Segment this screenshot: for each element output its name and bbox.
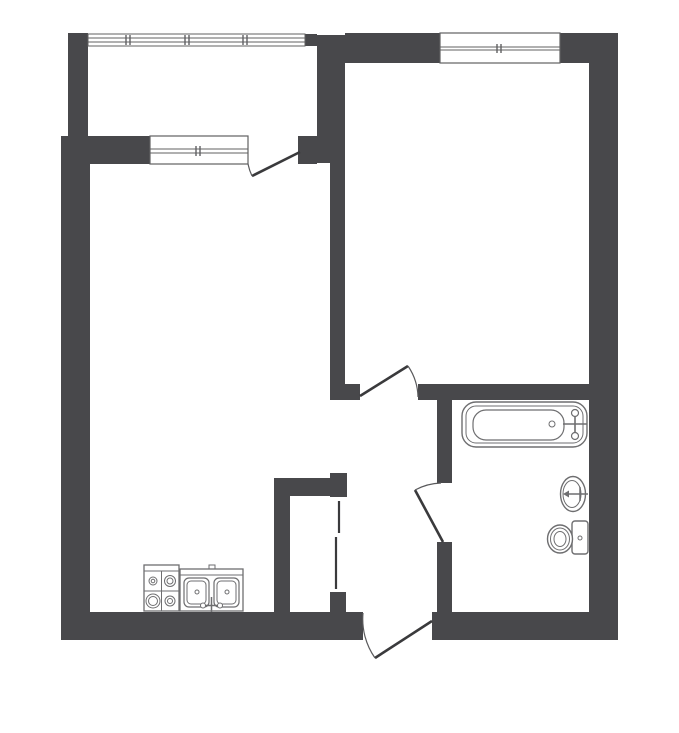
floorplan-svg: [0, 0, 679, 733]
kitchen-sink: [180, 565, 243, 612]
door-balcony: [248, 152, 300, 176]
wall-bath-left-upper: [437, 400, 452, 483]
wall-bedroom-top-left: [345, 33, 440, 63]
wall-bedroom-top-right: [560, 33, 618, 63]
room-balcony: [88, 46, 317, 136]
wall-outer-bottom-left: [61, 612, 363, 640]
room-bedroom: [345, 63, 589, 384]
wall-closet-left: [274, 478, 290, 613]
wall-balcony-left: [68, 33, 88, 136]
wall-closet-block-top: [330, 473, 347, 497]
wall-hall-top: [418, 384, 618, 400]
wall-outer-right: [589, 33, 618, 640]
wall-closet-block-bottom: [330, 592, 346, 613]
wall-outer-left: [61, 136, 90, 640]
wall-living-top: [61, 136, 150, 164]
room-closet: [290, 496, 336, 592]
door-bathroom: [415, 483, 443, 542]
toilet: [548, 521, 589, 554]
wall-middle-stub: [345, 384, 360, 400]
window-balcony-band: [88, 34, 305, 46]
door-entrance: [363, 613, 432, 658]
room-living: [90, 164, 330, 612]
wall-balcony-window-cap: [305, 34, 317, 46]
floor-plan: [0, 0, 679, 733]
wall-bath-left-lower: [437, 542, 452, 612]
bathtub: [462, 402, 587, 447]
washbasin: [561, 477, 589, 512]
window-living-room: [150, 136, 248, 164]
stove: [144, 565, 179, 611]
window-bedroom: [440, 33, 560, 63]
door-bedroom: [360, 366, 418, 397]
wall-balcony-right: [317, 35, 345, 163]
door-closet-sliding: [336, 501, 339, 589]
wall-middle: [330, 163, 345, 400]
wall-living-top-pier: [298, 136, 317, 164]
